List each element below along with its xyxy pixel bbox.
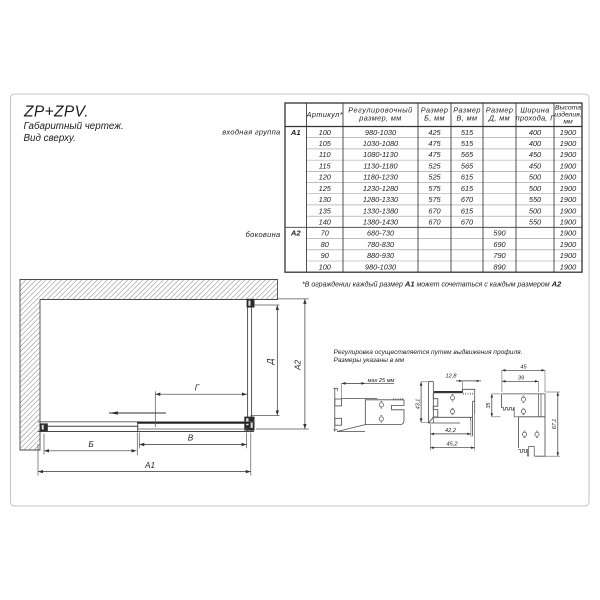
svg-text:70: 70 [321, 229, 330, 238]
svg-text:45: 45 [520, 364, 527, 370]
svg-text:39: 39 [518, 375, 524, 381]
svg-text:100: 100 [319, 262, 332, 271]
svg-text:565: 565 [461, 150, 474, 159]
svg-text:1130-1180: 1130-1180 [363, 161, 398, 170]
svg-text:450: 450 [529, 150, 542, 159]
svg-text:43,1: 43,1 [415, 399, 421, 410]
svg-text:1900: 1900 [560, 150, 577, 159]
svg-text:515: 515 [461, 139, 474, 148]
svg-text:550: 550 [529, 195, 542, 204]
svg-text:В, мм: В, мм [457, 114, 478, 123]
svg-text:1330-1380: 1330-1380 [363, 206, 399, 215]
svg-text:45,2: 45,2 [447, 442, 459, 448]
svg-text:Габаритный чертеж.: Габаритный чертеж. [24, 121, 124, 132]
svg-text:400: 400 [529, 139, 542, 148]
svg-text:615: 615 [461, 206, 474, 215]
svg-text:изделия,: изделия, [554, 110, 581, 118]
svg-text:1900: 1900 [560, 195, 577, 204]
svg-text:1900: 1900 [560, 184, 577, 193]
svg-text:мм: мм [563, 119, 573, 126]
svg-text:1900: 1900 [560, 240, 577, 249]
svg-text:450: 450 [529, 161, 542, 170]
svg-text:35: 35 [486, 402, 492, 409]
svg-text:Регулировка осуществляется пут: Регулировка осуществляется путем выдвиже… [334, 348, 523, 356]
svg-text:790: 790 [493, 251, 506, 260]
svg-text:130: 130 [319, 195, 332, 204]
svg-text:980-1030: 980-1030 [365, 128, 397, 137]
svg-text:42,2: 42,2 [445, 428, 457, 434]
svg-text:110: 110 [319, 150, 332, 159]
svg-text:890: 890 [493, 262, 506, 271]
svg-text:1900: 1900 [560, 251, 577, 260]
svg-text:А2: А2 [290, 229, 301, 238]
svg-text:1900: 1900 [560, 139, 577, 148]
svg-text:А1: А1 [144, 461, 155, 470]
svg-text:125: 125 [319, 184, 332, 193]
svg-text:670: 670 [461, 195, 474, 204]
svg-text:Высота: Высота [555, 104, 581, 111]
svg-text:515: 515 [461, 128, 474, 137]
svg-text:ZP+ZPV.: ZP+ZPV. [23, 104, 89, 121]
svg-text:500: 500 [529, 206, 542, 215]
svg-text:12,8: 12,8 [446, 374, 458, 380]
svg-text:670: 670 [428, 217, 441, 226]
svg-text:размер, мм: размер, мм [358, 114, 401, 123]
svg-text:565: 565 [461, 161, 474, 170]
svg-text:880-930: 880-930 [367, 251, 395, 260]
svg-text:1900: 1900 [560, 262, 577, 271]
svg-text:1380-1430: 1380-1430 [363, 217, 399, 226]
svg-text:67,1: 67,1 [552, 419, 558, 430]
svg-text:мах 25 мм: мах 25 мм [368, 378, 395, 384]
svg-text:боковина: боковина [246, 230, 281, 239]
svg-text:690: 690 [493, 240, 506, 249]
svg-text:1900: 1900 [560, 206, 577, 215]
svg-text:1900: 1900 [560, 128, 577, 137]
svg-text:А2: А2 [293, 360, 302, 371]
svg-text:А1: А1 [290, 128, 301, 137]
svg-text:прохода, Г: прохода, Г [516, 114, 555, 123]
svg-text:входная группа: входная группа [222, 128, 280, 137]
svg-text:400: 400 [529, 128, 542, 137]
svg-text:140: 140 [319, 217, 332, 226]
svg-text:575: 575 [428, 184, 441, 193]
svg-text:670: 670 [461, 217, 474, 226]
svg-text:1900: 1900 [560, 229, 577, 238]
svg-text:550: 550 [529, 217, 542, 226]
svg-text:Вид сверху.: Вид сверху. [24, 133, 76, 144]
svg-text:Артикул*: Артикул* [306, 110, 344, 119]
svg-text:590: 590 [493, 229, 506, 238]
svg-text:575: 575 [428, 195, 441, 204]
svg-text:500: 500 [529, 184, 542, 193]
svg-text:475: 475 [428, 139, 441, 148]
svg-text:525: 525 [428, 173, 441, 182]
svg-text:500: 500 [529, 173, 542, 182]
svg-text:425: 425 [428, 128, 441, 137]
svg-text:615: 615 [461, 173, 474, 182]
svg-text:475: 475 [428, 150, 441, 159]
svg-text:1900: 1900 [560, 217, 577, 226]
svg-text:1900: 1900 [560, 173, 577, 182]
svg-text:*В ограждении каждый размер А1: *В ограждении каждый размер А1 может соч… [302, 280, 562, 289]
svg-text:Г: Г [195, 384, 200, 393]
svg-text:Д, мм: Д, мм [488, 114, 510, 123]
svg-text:670: 670 [428, 206, 441, 215]
svg-text:525: 525 [428, 161, 441, 170]
svg-text:90: 90 [321, 251, 330, 260]
svg-text:615: 615 [461, 184, 474, 193]
svg-text:680-730: 680-730 [367, 229, 395, 238]
svg-text:120: 120 [319, 173, 332, 182]
svg-text:1230-1280: 1230-1280 [363, 184, 399, 193]
svg-text:80: 80 [321, 240, 330, 249]
svg-text:1030-1080: 1030-1080 [363, 139, 399, 148]
svg-text:В: В [188, 434, 194, 443]
svg-text:105: 105 [319, 139, 332, 148]
svg-text:780-830: 780-830 [367, 240, 395, 249]
svg-text:980-1030: 980-1030 [365, 262, 397, 271]
svg-text:135: 135 [319, 206, 332, 215]
svg-text:1080-1130: 1080-1130 [363, 150, 399, 159]
svg-text:1180-1230: 1180-1230 [363, 173, 399, 182]
svg-text:Б, мм: Б, мм [424, 114, 445, 123]
svg-text:Б: Б [88, 440, 94, 449]
svg-text:Размеры указаны в мм: Размеры указаны в мм [334, 357, 405, 364]
svg-text:1280-1330: 1280-1330 [363, 195, 399, 204]
svg-text:Д: Д [266, 358, 275, 365]
svg-text:115: 115 [319, 161, 332, 170]
svg-text:1900: 1900 [560, 161, 577, 170]
svg-text:100: 100 [319, 128, 332, 137]
